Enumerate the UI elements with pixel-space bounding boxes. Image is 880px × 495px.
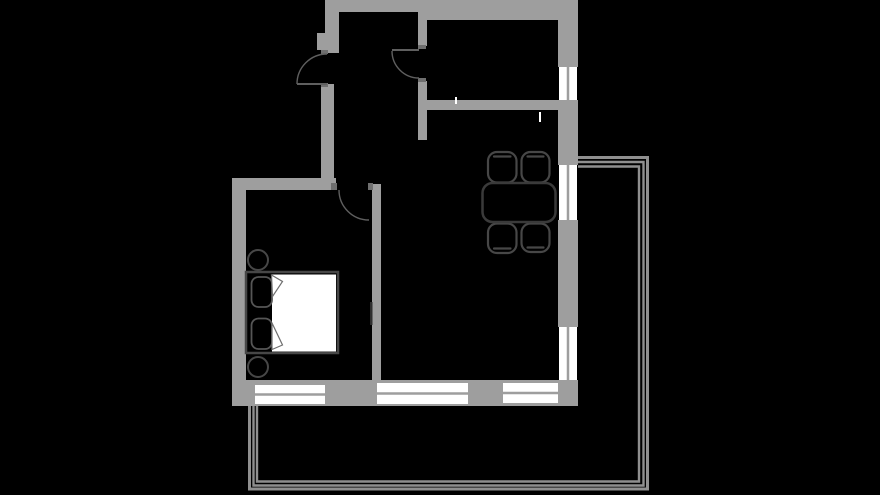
bedroom-west-wall <box>232 178 246 406</box>
divider-wall-mark <box>370 302 373 325</box>
east-wall-segment-3 <box>558 220 578 327</box>
dining-table <box>483 183 556 222</box>
pillow-top <box>252 277 273 307</box>
kitchen-door-jamb-top <box>418 45 426 49</box>
nightstand-top <box>248 250 268 270</box>
hallway-west-wall <box>321 84 334 190</box>
living-window-east-upper-mullion <box>567 165 570 220</box>
nightstand-bottom <box>248 357 268 377</box>
top-wall-west <box>334 0 420 12</box>
floor-plan <box>0 0 880 495</box>
kitchen-door-jamb-bottom <box>418 78 426 82</box>
east-wall-segment-2 <box>558 100 578 165</box>
kitchen-south-wall <box>427 100 558 110</box>
dining-fixture-mark <box>539 112 541 122</box>
kitchen-fixture-mark <box>455 97 457 104</box>
bed-mattress <box>272 275 336 352</box>
kitchen-window-east-mullion <box>567 67 570 100</box>
living-window-south-right-mullion <box>503 392 558 395</box>
kitchen-west-wall-lower <box>418 81 427 140</box>
bedroom-north-wall <box>232 178 336 190</box>
plan-background <box>0 0 880 495</box>
top-wall-east <box>420 0 578 20</box>
pillow-bottom <box>252 319 273 350</box>
living-window-east-lower-mullion <box>567 327 570 380</box>
floor-plan-page <box>0 0 880 495</box>
bedroom-door-jamb-left <box>331 183 337 190</box>
living-window-south-left-mullion <box>377 392 468 395</box>
east-wall-segment-1 <box>558 20 578 67</box>
bedroom-window-south-mullion <box>255 393 325 396</box>
bedroom-door-jamb-right <box>368 183 373 190</box>
entry-wall-pilaster <box>317 33 325 50</box>
bedroom-living-divider-wall <box>372 184 381 380</box>
